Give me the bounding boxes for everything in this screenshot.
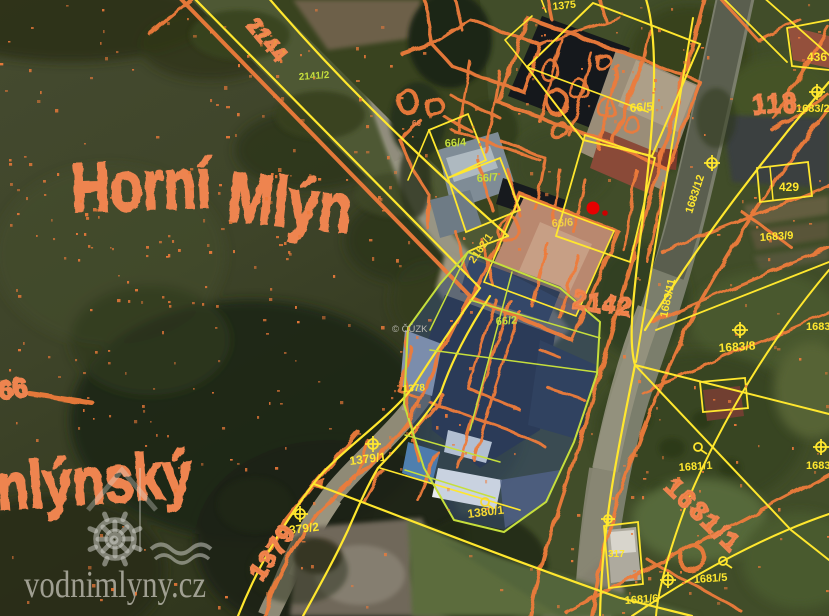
svg-text:1683: 1683 xyxy=(806,460,829,472)
svg-text:118: 118 xyxy=(752,87,800,120)
svg-text:66/7: 66/7 xyxy=(476,172,498,185)
svg-text:436: 436 xyxy=(807,50,827,64)
svg-text:Mlýn: Mlýn xyxy=(224,157,355,248)
svg-text:66: 66 xyxy=(412,119,421,128)
svg-text:1681/5: 1681/5 xyxy=(693,572,727,586)
svg-text:© ČÚZK: © ČÚZK xyxy=(392,324,428,335)
svg-text:1681/6: 1681/6 xyxy=(624,593,658,607)
svg-text:1683/8: 1683/8 xyxy=(718,338,756,355)
svg-text:317: 317 xyxy=(608,549,625,560)
svg-text:66: 66 xyxy=(0,371,30,406)
svg-text:1681/1: 1681/1 xyxy=(678,460,712,474)
svg-text:66/5: 66/5 xyxy=(629,99,654,115)
svg-text:66/6: 66/6 xyxy=(551,217,573,230)
svg-text:1378: 1378 xyxy=(402,382,425,395)
svg-text:2141/2: 2141/2 xyxy=(298,70,330,83)
svg-text:1683/9: 1683/9 xyxy=(759,230,793,244)
svg-text:Horní: Horní xyxy=(70,144,215,227)
svg-text:66/4: 66/4 xyxy=(444,136,467,150)
svg-text:66/2: 66/2 xyxy=(495,315,517,328)
svg-text:vodnimlyny.cz: vodnimlyny.cz xyxy=(24,564,206,606)
svg-text:429: 429 xyxy=(779,180,799,194)
svg-text:nlýnský: nlýnský xyxy=(0,436,195,524)
svg-text:1683: 1683 xyxy=(806,321,829,333)
svg-text:1683/2: 1683/2 xyxy=(796,103,829,115)
